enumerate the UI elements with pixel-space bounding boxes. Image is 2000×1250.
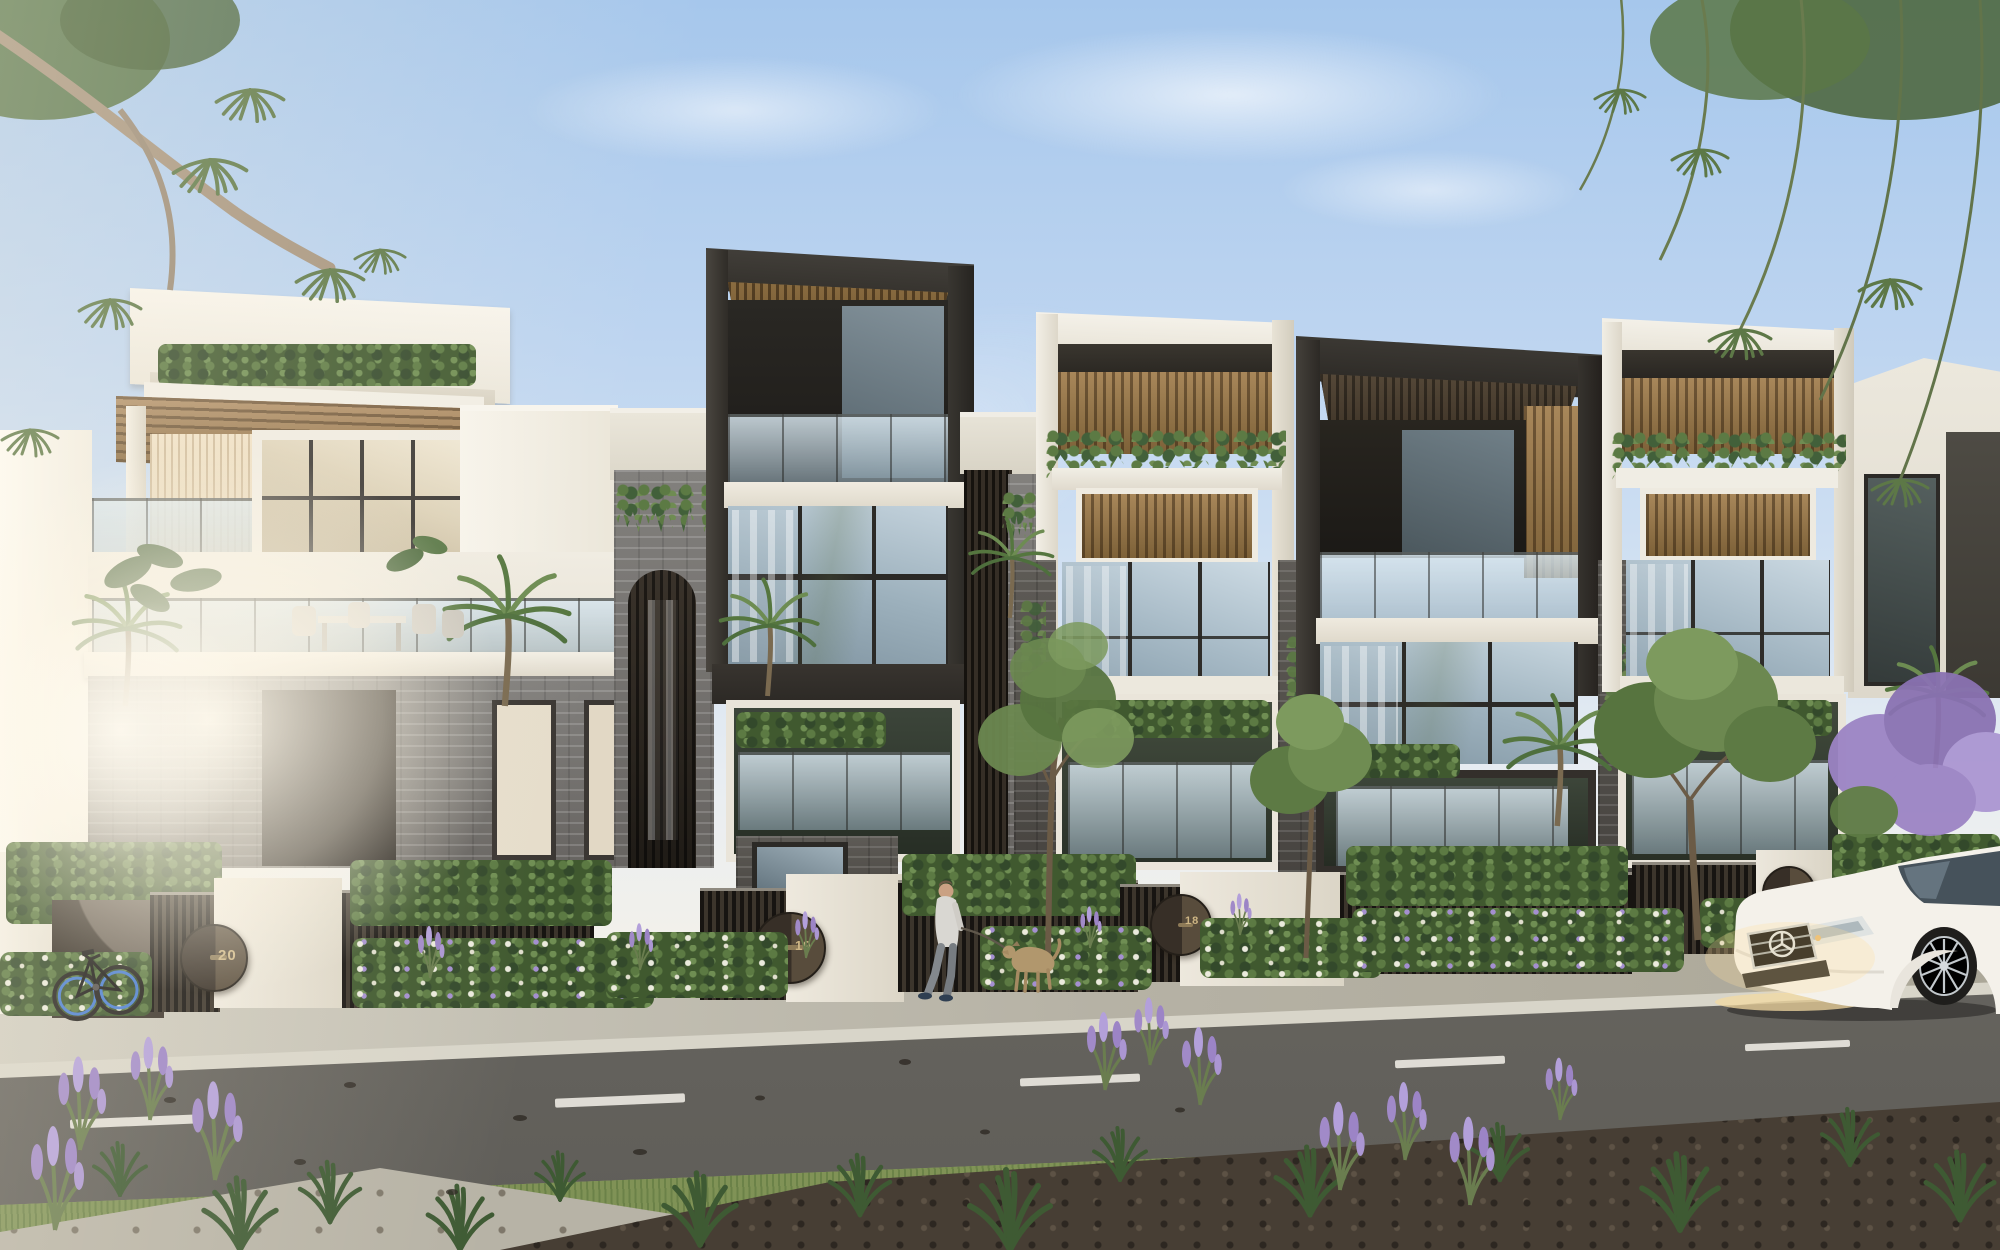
street-scene: 20 19 18 17 (0, 0, 2000, 1250)
warm-light-wash (0, 0, 2000, 1250)
